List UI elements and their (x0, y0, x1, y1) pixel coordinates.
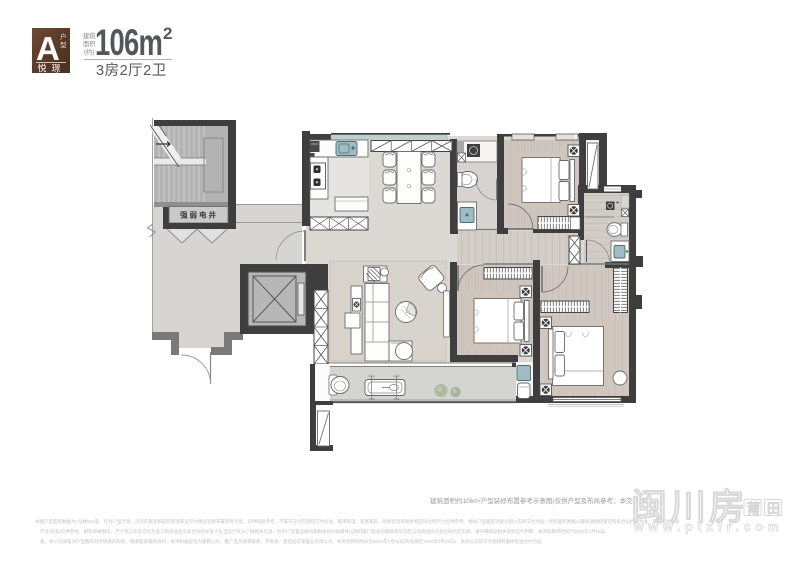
svg-text:型: 型 (60, 40, 67, 49)
svg-text:尺寸(如有)仅供参考、精装效果图示、尺寸等以实际交付为准订购: 尺寸(如有)仅供参考、精装效果图示、尺寸等以实际交付为准订购商品房买卖合同的买受… (40, 528, 605, 535)
svg-text:本图户型面积数据为1号楼601室、仅为户型示意、涉及的家装和: 本图户型面积数据为1号楼601室、仅为户型示意、涉及的家装和软装家具陈设仅为建议… (35, 518, 680, 525)
svg-text:A: A (36, 30, 60, 67)
svg-text:强弱电井: 强弱电井 (180, 210, 218, 220)
svg-text:(约): (约) (84, 47, 95, 56)
svg-text:建筑面积约106m²户型装修布置参考示意图(仅供户型及布局参: 建筑面积约106m²户型装修布置参考示意图(仅供户型及布局参考、本交付标准) (430, 496, 654, 505)
svg-text:www.ptxfr.com: www.ptxfr.com (633, 520, 784, 534)
svg-text:莆田: 莆田 (747, 501, 787, 516)
svg-text:户: 户 (60, 32, 67, 41)
svg-text:2: 2 (163, 24, 172, 43)
svg-text:106m: 106m (95, 22, 162, 63)
svg-text:意、本公司保留对户型图的对内修改的权利、敬请留意最新资料、本: 意、本公司保留对户型图的对内修改的权利、敬请留意最新资料、本项目备案名为豪郡公司… (40, 538, 542, 545)
svg-text:悦璟: 悦璟 (38, 63, 66, 74)
svg-text:3房2厅2卫: 3房2厅2卫 (96, 62, 167, 79)
